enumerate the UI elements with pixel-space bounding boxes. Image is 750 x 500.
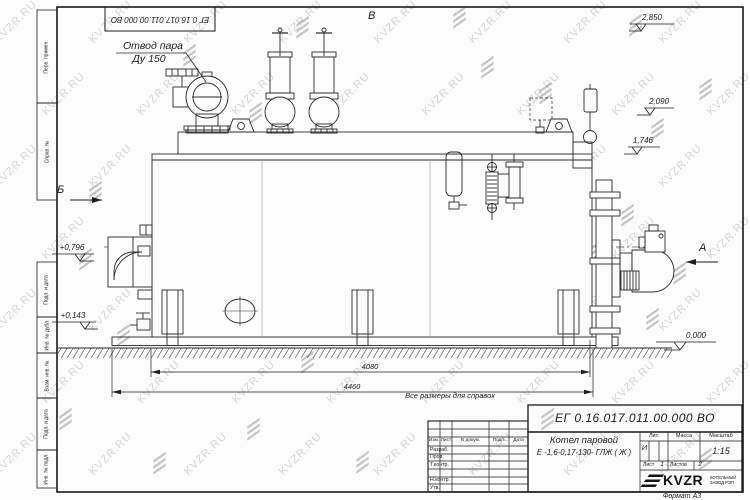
sheets-value: 2: [694, 462, 706, 469]
col-data: Дата: [509, 439, 528, 444]
lit-label: Лит.: [640, 434, 668, 440]
feed-elbow-box: [108, 237, 152, 287]
scale-label: Масштаб: [700, 434, 742, 440]
level-0000: 0,000: [678, 332, 714, 340]
row-prov: Пров.: [430, 455, 444, 460]
drawing-sheet: KVZR.RUKVZR.RUKVZR.RUKVZR.RUKVZR.RUKVZR.…: [0, 0, 750, 500]
col-izm: Изм.: [428, 439, 440, 444]
col-list: Лист: [440, 439, 452, 444]
product-name: Котел паровой: [528, 436, 640, 446]
stamp-perv-primen: Перв. примен.: [37, 10, 57, 103]
stamp-vzam-inv: Взам. инв. №: [37, 353, 57, 398]
safety-valve: [309, 28, 339, 133]
col-podp: Подп.: [489, 439, 509, 444]
product-designation: Е -1,6-0,17-130- ГЛЖ ( Ж ): [528, 449, 640, 457]
lit-value: И: [640, 444, 649, 452]
level-2090: 2,090: [642, 98, 676, 106]
pressure-gauge: [584, 84, 598, 144]
kvzr-logo-text: KVZR: [663, 470, 703, 491]
view-label-left: Б: [57, 185, 64, 196]
stamp-inv-podl: Инв. № подл.: [37, 450, 57, 488]
row-razrab: Разраб.: [430, 448, 449, 453]
title-doc-number: ЕГ 0.16.017.011.00.000 ВО: [528, 405, 742, 432]
level-0796: +0,796: [50, 244, 94, 252]
burner: [612, 225, 674, 297]
rear-door-plate: [590, 180, 620, 348]
format-label: Формат А3: [650, 493, 714, 500]
drain-valve: [137, 319, 150, 330]
dim-4460: 4460: [322, 383, 382, 391]
stamp-sprav-no: Справ. №: [37, 103, 57, 200]
ground-hatch: [58, 348, 672, 358]
sheets-label: Листов: [670, 463, 687, 468]
sheet-label: Лист: [643, 463, 654, 468]
view-label-top: В: [368, 11, 375, 22]
doc-number-top: ЕГ 0.16.017.011.00.000 ВО: [105, 8, 215, 30]
col-ndoc: N докум.: [452, 439, 489, 444]
reference-note: Все размеры для справок: [395, 392, 505, 400]
stamp-inv-dubl: Инв. № дубл.: [37, 317, 57, 353]
row-utv: Утв.: [430, 486, 440, 491]
view-label-right: А: [699, 243, 706, 254]
safety-valve: [265, 28, 295, 133]
level-1746: 1,746: [626, 137, 660, 145]
stamp-podp-data-2: Подп. и дата: [37, 398, 57, 450]
base-rail: [112, 337, 618, 346]
steam-outlet-valve: [166, 69, 230, 133]
steam-outlet-label-line1: Отвод пара: [116, 41, 190, 52]
kvzr-logo-subtext: КОТЕЛЬНЫЙ ЗАВОД РЭП: [710, 475, 736, 486]
steam-outlet-label-line2: Ду 150: [118, 54, 180, 65]
scale-value: 1:15: [700, 443, 742, 459]
level-2850: 2,850: [630, 14, 674, 22]
row-tkontr: Т.контр.: [430, 463, 449, 468]
row-nkontr: Н.контр.: [430, 478, 450, 483]
stamp-podp-data-1: Подп. и дата: [37, 262, 57, 317]
massa-label: Масса: [668, 434, 700, 440]
phantom-equipment-outline: [530, 98, 552, 133]
sheet-value: 1: [657, 462, 667, 469]
dim-4080: 4080: [340, 363, 400, 371]
